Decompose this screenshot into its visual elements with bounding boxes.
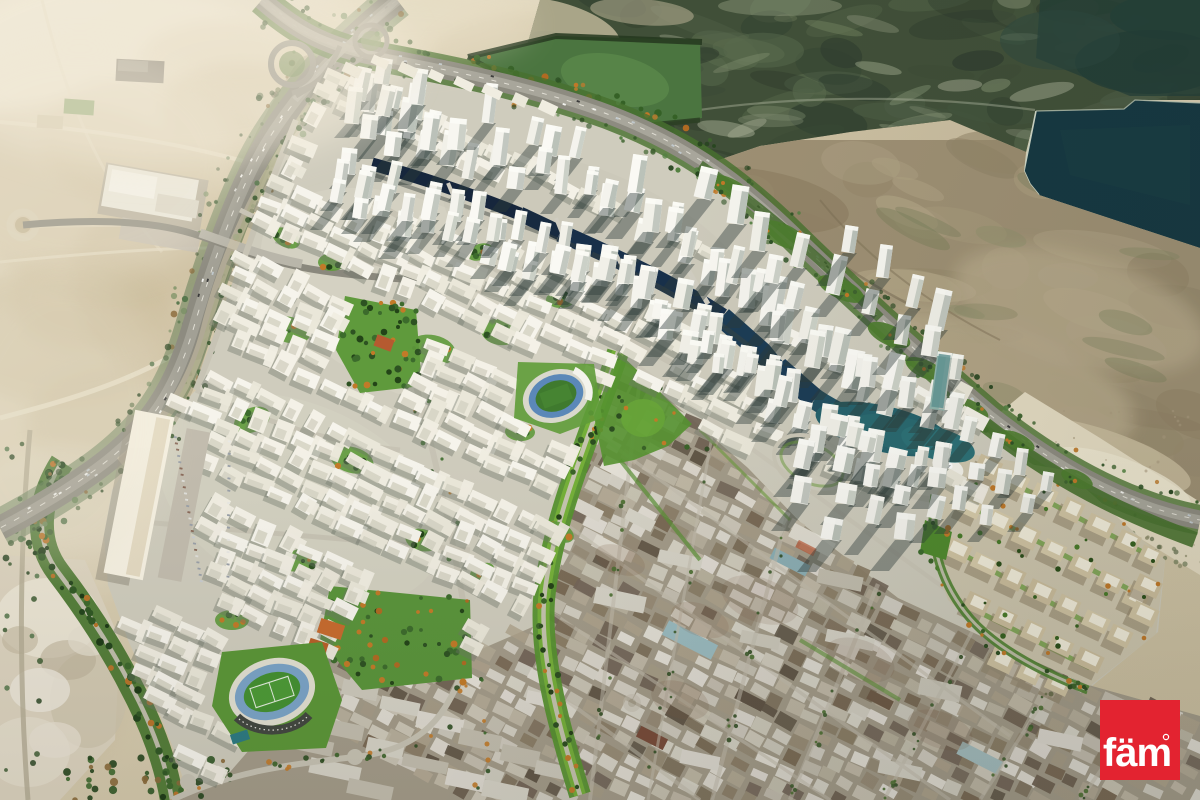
svg-text:fäm: fäm: [1103, 731, 1171, 775]
